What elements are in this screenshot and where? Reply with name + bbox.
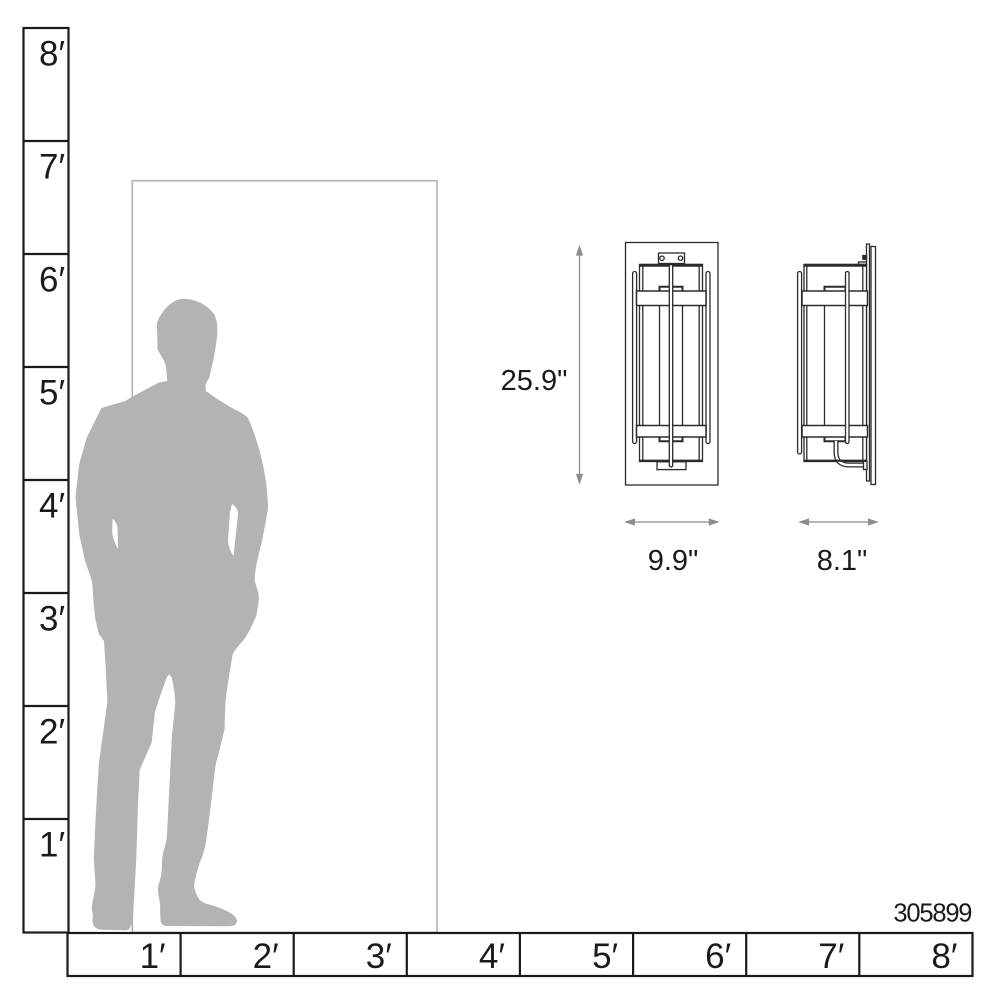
svg-text:305899: 305899 [893,900,971,928]
svg-text:8′: 8′ [931,937,957,976]
svg-text:6′: 6′ [705,937,731,976]
svg-text:2′: 2′ [253,937,279,976]
svg-text:3′: 3′ [366,937,392,976]
svg-text:8.1": 8.1" [817,545,868,577]
svg-text:5′: 5′ [39,374,65,413]
svg-text:7′: 7′ [39,148,65,187]
svg-text:1′: 1′ [39,826,65,865]
svg-text:3′: 3′ [39,600,65,639]
svg-text:4′: 4′ [479,937,505,976]
svg-text:2′: 2′ [39,713,65,752]
svg-text:1′: 1′ [140,937,166,976]
svg-text:4′: 4′ [39,487,65,526]
svg-text:25.9": 25.9" [501,365,568,397]
svg-text:7′: 7′ [818,937,844,976]
svg-text:8′: 8′ [39,35,65,74]
svg-text:5′: 5′ [592,937,618,976]
svg-text:9.9": 9.9" [648,545,699,577]
svg-text:6′: 6′ [39,261,65,300]
